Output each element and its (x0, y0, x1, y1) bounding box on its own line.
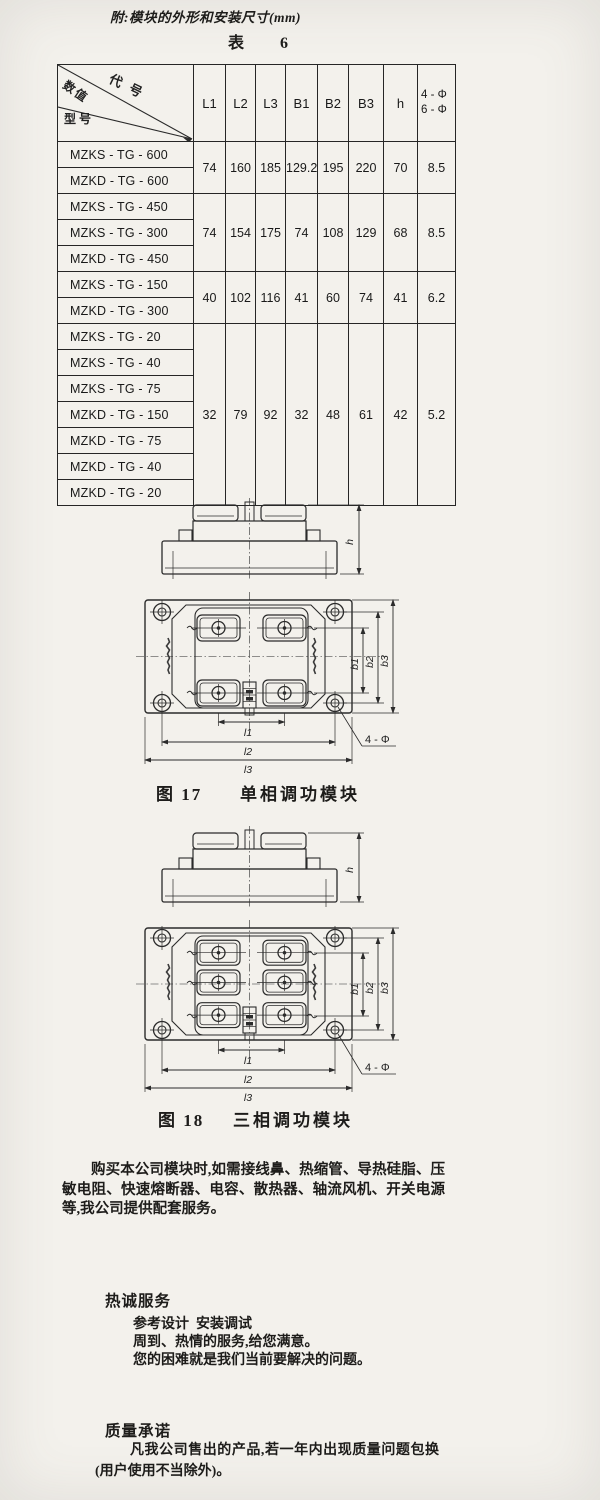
model-cell: MZKS - TG - 20 (58, 324, 194, 350)
value-cell: 79 (226, 324, 256, 506)
dim-label-l2: l2 (244, 746, 252, 758)
model-cell: MZKS - TG - 150 (58, 272, 194, 298)
mounting-hole (150, 926, 174, 950)
model-cell: MZKS - TG - 40 (58, 350, 194, 376)
column-header: B2 (318, 65, 349, 142)
accessories-paragraph: 购买本公司模块时,如需接线鼻、热缩管、导热硅脂、压敏电阻、快速熔断器、电容、散热… (62, 1161, 445, 1220)
corner-label-code: 代号 (106, 71, 153, 104)
mounting-hole (323, 600, 347, 624)
value-cell: 129 (349, 194, 384, 272)
dimension-table: 代号 数值 型号 L1 L2 L3 B1 B2 B3 h 4 - Φ 6 - Φ (57, 64, 456, 506)
value-cell: 185 (256, 142, 286, 194)
pad-weld-marks (187, 951, 317, 1018)
column-header: L3 (256, 65, 286, 142)
value-cell: 154 (226, 194, 256, 272)
value-cell: 60 (318, 272, 349, 324)
single-phase-module-drawing: h (128, 496, 428, 782)
column-header-phi: 4 - Φ 6 - Φ (418, 65, 456, 142)
figure-17: h (128, 496, 428, 782)
service-heading: 热诚服务 (105, 1289, 171, 1311)
side-marking-left (167, 964, 170, 1000)
model-cell: MZKD - TG - 450 (58, 246, 194, 272)
table-row: MZKS - TG - 600 74 160 185 129.2 195 220… (58, 142, 456, 168)
module-side-view (162, 826, 337, 907)
value-cell: 74 (194, 142, 226, 194)
dim-label-l3: l3 (244, 1092, 252, 1104)
quality-paragraph: 凡我公司售出的产品,若一年内出现质量问题包换(用户使用不当除外)。 (95, 1440, 439, 1482)
value-cell: 40 (194, 272, 226, 324)
value-cell: 129.2 (286, 142, 318, 194)
mounting-hole (323, 691, 347, 715)
diagonal-header-drawing: 代号 数值 型号 (58, 65, 194, 141)
corner-label-model: 型号 (64, 111, 94, 126)
model-cell: MZKS - TG - 600 (58, 142, 194, 168)
terminal-pad (191, 680, 246, 706)
page-title: 附:模块的外形和安装尺寸(mm) (110, 6, 301, 26)
figure-18: h (128, 826, 428, 1112)
value-cell: 68 (384, 194, 418, 272)
table-header-row: 代号 数值 型号 L1 L2 L3 B1 B2 B3 h 4 - Φ 6 - Φ (58, 65, 456, 142)
value-cell: 70 (384, 142, 418, 194)
value-cell: 41 (384, 272, 418, 324)
dim-label-h: h (344, 867, 356, 873)
model-cell: MZKD - TG - 600 (58, 168, 194, 194)
dim-label-b1: b1 (349, 983, 361, 995)
column-header: L1 (194, 65, 226, 142)
value-cell: 61 (349, 324, 384, 506)
service-line: 您的困难就是我们当前要解决的问题。 (133, 1349, 371, 1369)
mounting-hole (150, 691, 174, 715)
value-cell: 5.2 (418, 324, 456, 506)
column-header: B3 (349, 65, 384, 142)
figure-18-number: 图 18 (158, 1106, 204, 1131)
scanned-document-page: 附:模块的外形和安装尺寸(mm) 表 6 代号 数值 (0, 0, 600, 1500)
figure-18-title: 三相调功模块 (233, 1106, 353, 1131)
value-cell: 108 (318, 194, 349, 272)
value-cell: 102 (226, 272, 256, 324)
table-row: MZKS - TG - 20 32 79 92 32 48 61 42 5.2 (58, 324, 456, 350)
terminal-pad (191, 940, 246, 965)
model-cell: MZKD - TG - 40 (58, 454, 194, 480)
service-line: 周到、热情的服务,给您满意。 (133, 1331, 319, 1351)
table-caption: 表 6 (228, 29, 288, 53)
terminal-pad (191, 970, 246, 995)
phi-line-2: 6 - Φ (421, 103, 455, 118)
terminal-pad (191, 615, 246, 641)
dim-label-b1: b1 (349, 658, 361, 670)
side-marking-right (313, 964, 316, 1000)
quality-heading: 质量承诺 (105, 1419, 171, 1441)
mounting-hole (150, 600, 174, 624)
figure-17-title: 单相调功模块 (240, 780, 360, 805)
value-cell: 8.5 (418, 142, 456, 194)
terminal-pad (257, 1003, 312, 1028)
mounting-hole (150, 1018, 174, 1042)
service-line: 参考设计 安装调试 (133, 1313, 252, 1333)
value-cell: 48 (318, 324, 349, 506)
column-header: h (384, 65, 418, 142)
dim-label-holes: 4 - Φ (365, 1062, 390, 1074)
module-side-view (162, 498, 337, 579)
model-cell: MZKD - TG - 150 (58, 402, 194, 428)
value-cell: 32 (286, 324, 318, 506)
column-header: B1 (286, 65, 318, 142)
value-cell: 116 (256, 272, 286, 324)
pad-weld-marks (187, 626, 317, 695)
model-cell: MZKS - TG - 450 (58, 194, 194, 220)
value-cell: 42 (384, 324, 418, 506)
figure-17-number: 图 17 (156, 780, 202, 805)
value-cell: 74 (194, 194, 226, 272)
value-cell: 92 (256, 324, 286, 506)
value-cell: 8.5 (418, 194, 456, 272)
dim-label-b3: b3 (379, 982, 391, 994)
model-cell: MZKD - TG - 300 (58, 298, 194, 324)
dim-label-holes: 4 - Φ (365, 734, 390, 746)
three-phase-module-drawing: h (128, 826, 428, 1112)
value-cell: 74 (349, 272, 384, 324)
table-row: MZKS - TG - 450 74 154 175 74 108 129 68… (58, 194, 456, 220)
model-cell: MZKS - TG - 75 (58, 376, 194, 402)
value-cell: 195 (318, 142, 349, 194)
dim-label-l3: l3 (244, 764, 252, 776)
dim-label-b2: b2 (364, 982, 376, 994)
terminal-pad (257, 680, 312, 706)
mounting-hole (323, 1018, 347, 1042)
terminal-pad (191, 1003, 246, 1028)
dim-label-l2: l2 (244, 1074, 252, 1086)
mounting-hole (323, 926, 347, 950)
value-cell: 74 (286, 194, 318, 272)
dim-label-l1: l1 (244, 1055, 252, 1067)
side-marking-left (167, 638, 170, 674)
terminal-pad (257, 970, 312, 995)
table-row: MZKS - TG - 150 40 102 116 41 60 74 41 6… (58, 272, 456, 298)
value-cell: 32 (194, 324, 226, 506)
value-cell: 175 (256, 194, 286, 272)
value-cell: 6.2 (418, 272, 456, 324)
dim-label-l1: l1 (244, 727, 252, 739)
dim-label-b2: b2 (364, 656, 376, 668)
value-cell: 220 (349, 142, 384, 194)
dim-label-h: h (344, 539, 356, 545)
terminal-pad (257, 940, 312, 965)
diagonal-header-cell: 代号 数值 型号 (58, 65, 194, 142)
model-cell: MZKD - TG - 75 (58, 428, 194, 454)
terminal-pad (257, 615, 312, 641)
dim-label-b3: b3 (379, 655, 391, 667)
model-cell: MZKS - TG - 300 (58, 220, 194, 246)
phi-line-1: 4 - Φ (421, 88, 455, 103)
side-marking-right (313, 638, 316, 674)
value-cell: 160 (226, 142, 256, 194)
column-header: L2 (226, 65, 256, 142)
value-cell: 41 (286, 272, 318, 324)
